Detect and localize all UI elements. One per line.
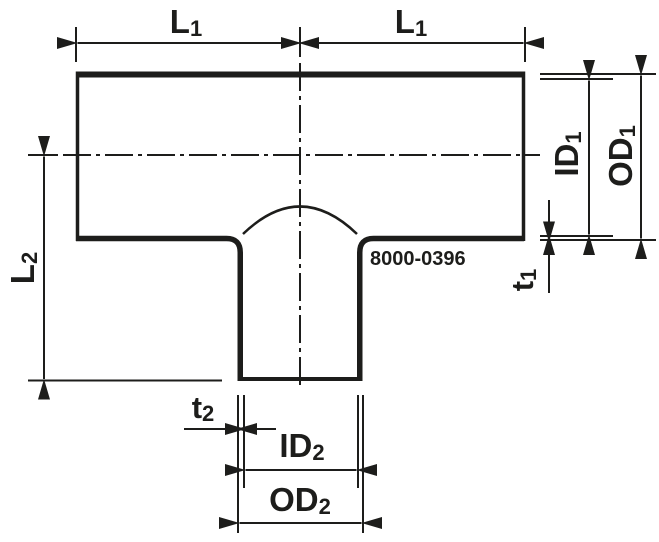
id1-label: ID1 [548, 131, 586, 176]
id2-label: ID2 [279, 427, 324, 465]
dimension-l1-right: L1 [302, 3, 526, 62]
dimension-t2: t2 [184, 390, 276, 429]
dimension-l2: L2 [4, 155, 222, 381]
t2-label: t2 [192, 390, 215, 426]
dimension-t1: t1 [505, 200, 549, 293]
dimension-od2: OD2 [238, 395, 363, 533]
t1-label: t1 [505, 269, 541, 292]
od2-label: OD2 [269, 481, 331, 519]
l1-left-label: L1 [170, 3, 202, 41]
dimension-id2: ID2 [244, 395, 358, 488]
od1-label: OD1 [602, 125, 640, 187]
centerlines [63, 63, 540, 390]
run-bottom-left-and-branch-left-wall [76, 239, 240, 378]
dimension-l1-left: L1 [76, 3, 300, 62]
part-number-label: 8000-0396 [370, 248, 466, 270]
tee-technical-drawing: L1 L1 L2 ID1 OD1 t1 t2 [0, 0, 659, 542]
l2-label: L2 [4, 252, 42, 284]
l1-right-label: L1 [395, 3, 427, 41]
drawing-canvas: L1 L1 L2 ID1 OD1 t1 t2 [0, 0, 659, 542]
